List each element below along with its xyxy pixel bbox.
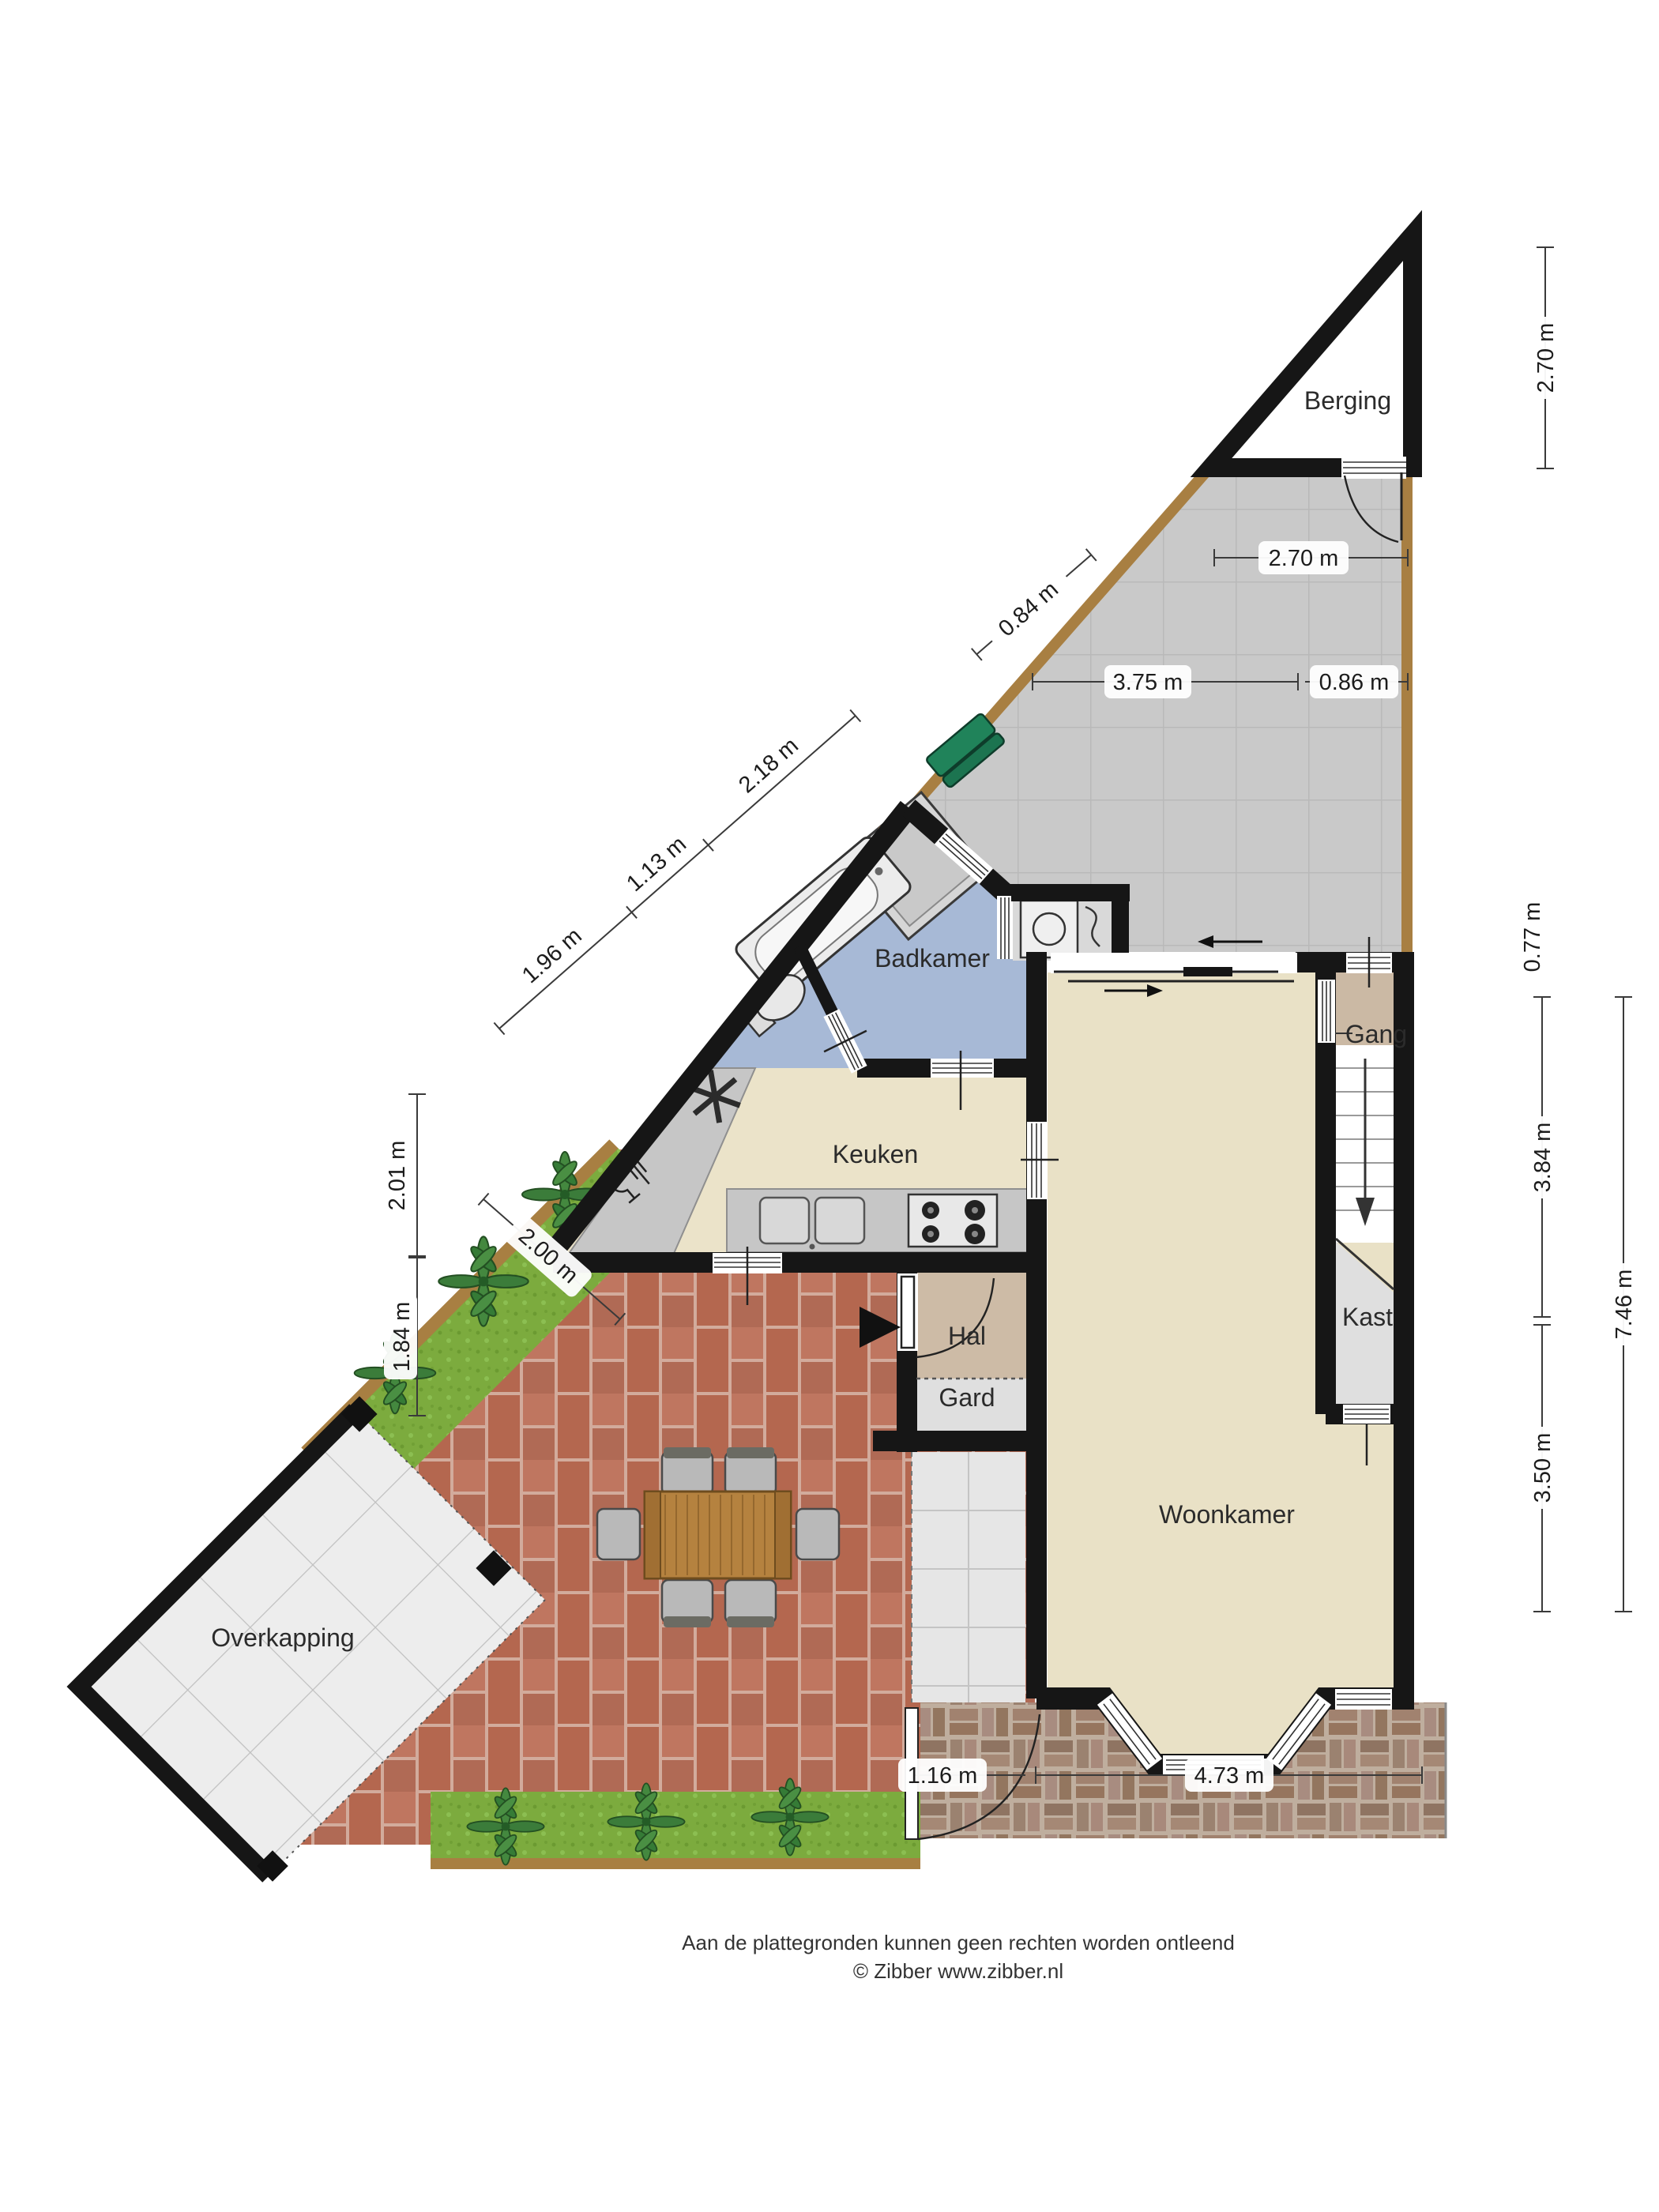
room-hal — [907, 1262, 1026, 1379]
svg-text:1.84 m: 1.84 m — [389, 1302, 415, 1372]
svg-text:2.70 m: 2.70 m — [1269, 546, 1339, 571]
dim-right-350: 3.50 m — [1526, 1325, 1558, 1612]
svg-text:2.01 m: 2.01 m — [385, 1141, 410, 1211]
label-gang: Gang — [1345, 1020, 1407, 1048]
svg-text:3.75 m: 3.75 m — [1113, 670, 1183, 695]
label-kast: Kast — [1342, 1303, 1393, 1331]
sink-basin — [760, 1198, 809, 1243]
faucet-icon — [810, 1244, 815, 1250]
washing-machine — [1021, 901, 1078, 957]
footer-copyright: © Zibber www.zibber.nl — [853, 1959, 1063, 1983]
label-woonkamer: Woonkamer — [1159, 1500, 1295, 1529]
svg-text:3.84 m: 3.84 m — [1530, 1123, 1556, 1193]
label-gard: Gard — [939, 1383, 995, 1412]
svg-text:3.50 m: 3.50 m — [1530, 1433, 1556, 1503]
footer-disclaimer: Aan de plattegronden kunnen geen rechten… — [682, 1931, 1235, 1954]
table — [645, 1492, 791, 1578]
svg-text:1.96 m: 1.96 m — [517, 924, 587, 989]
label-berging: Berging — [1304, 386, 1391, 415]
dim-right-077: 0.77 m — [1520, 902, 1545, 972]
dim-right-746: 7.46 m — [1608, 997, 1639, 1612]
floorplan-svg: Berging Badkamer Keuken Gang Kast Hal Ga… — [0, 0, 1659, 2212]
svg-text:1.16 m: 1.16 m — [908, 1763, 978, 1789]
dim-path-086: 0.86 m — [1305, 665, 1408, 698]
label-keuken: Keuken — [833, 1140, 919, 1168]
svg-text:2.18 m: 2.18 m — [734, 733, 803, 799]
dim-berging-height: 2.70 m — [1529, 247, 1561, 468]
svg-text:2.70 m: 2.70 m — [1533, 323, 1559, 393]
sliding-door-opening — [1051, 953, 1297, 973]
dim-right-384: 3.84 m — [1526, 997, 1558, 1317]
sink-basin — [815, 1198, 864, 1243]
label-overkapping: Overkapping — [211, 1623, 354, 1652]
label-hal: Hal — [948, 1322, 986, 1350]
svg-text:1.13 m: 1.13 m — [622, 832, 691, 897]
svg-text:7.46 m: 7.46 m — [1612, 1270, 1637, 1340]
svg-text:0.86 m: 0.86 m — [1319, 670, 1390, 695]
dim-left-201: 2.01 m — [385, 1094, 426, 1256]
label-badkamer: Badkamer — [875, 944, 990, 972]
room-berging — [1211, 235, 1413, 468]
svg-text:0.77 m: 0.77 m — [1520, 902, 1545, 972]
floorplan-page: Berging Badkamer Keuken Gang Kast Hal Ga… — [0, 0, 1659, 2212]
svg-text:4.73 m: 4.73 m — [1194, 1763, 1265, 1789]
